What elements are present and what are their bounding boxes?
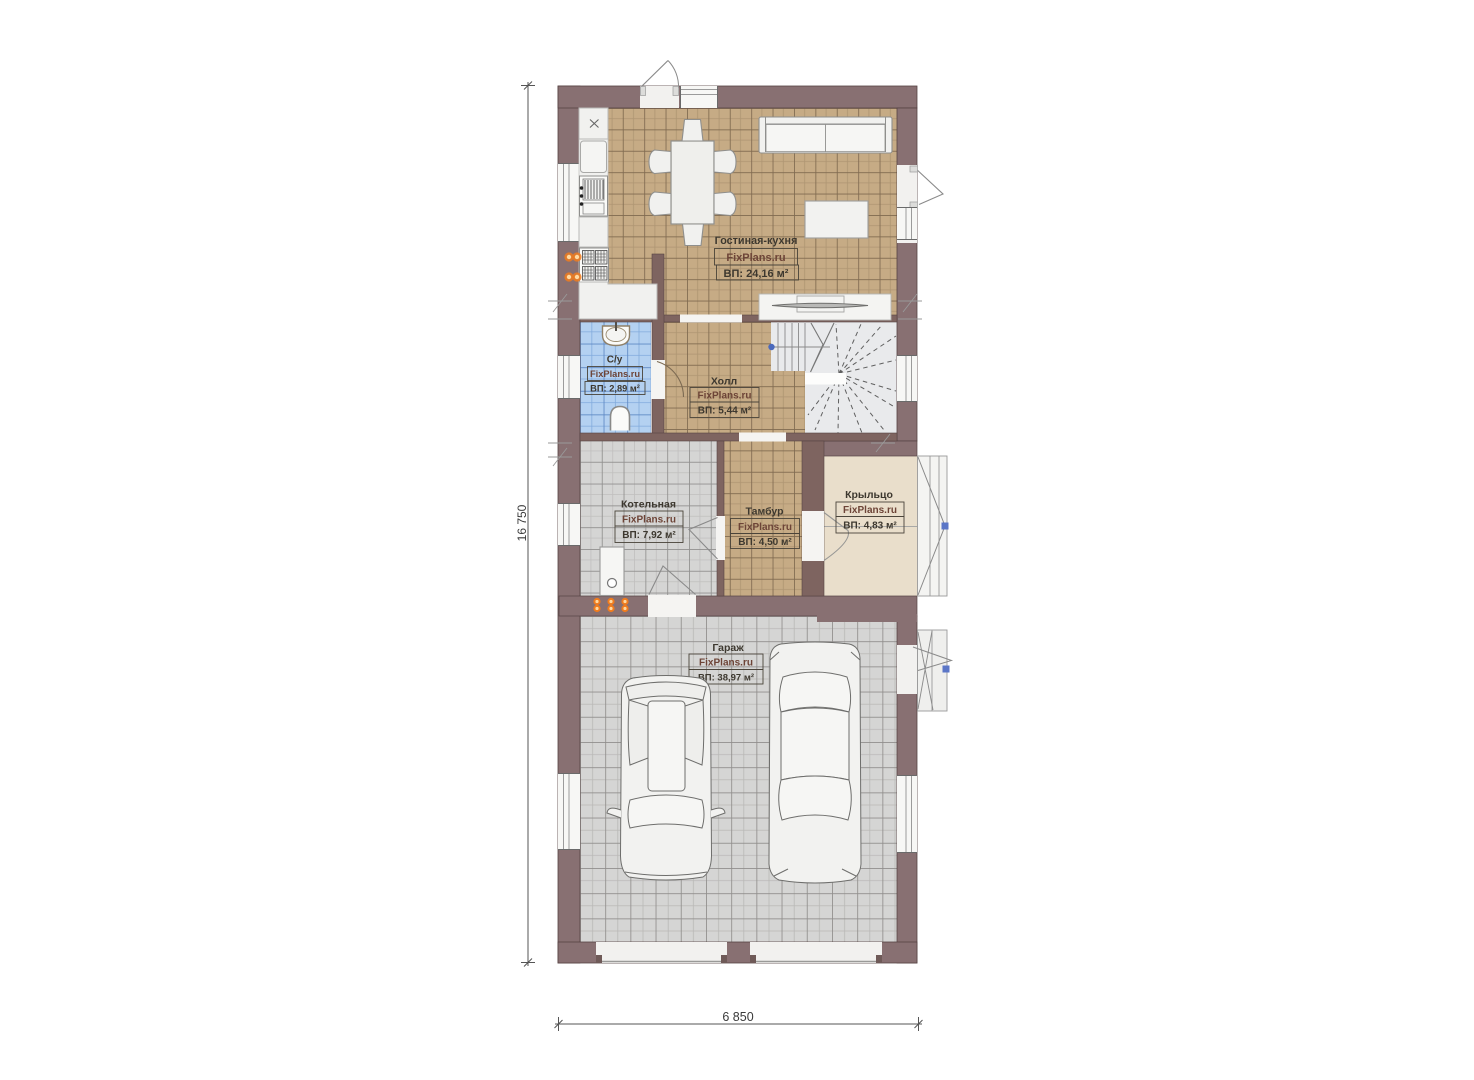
svg-text:ВП: 5,44 м²: ВП: 5,44 м² [698, 406, 752, 417]
svg-text:FixPlans.ru: FixPlans.ru [590, 369, 640, 379]
svg-text:Гостиная-кухня: Гостиная-кухня [715, 235, 798, 247]
svg-text:Крыльцо: Крыльцо [845, 489, 893, 501]
svg-text:ВП: 4,83 м²: ВП: 4,83 м² [843, 521, 897, 532]
svg-text:16 750: 16 750 [515, 504, 529, 541]
svg-text:Котельная: Котельная [621, 499, 676, 511]
svg-text:ВП: 4,50 м²: ВП: 4,50 м² [738, 537, 792, 548]
svg-text:6 850: 6 850 [722, 1010, 753, 1024]
svg-text:Холл: Холл [711, 376, 737, 388]
svg-text:Тамбур: Тамбур [745, 506, 783, 518]
svg-text:FixPlans.ru: FixPlans.ru [726, 252, 785, 264]
svg-text:FixPlans.ru: FixPlans.ru [698, 391, 752, 402]
svg-text:ВП: 24,16 м²: ВП: 24,16 м² [724, 268, 789, 280]
svg-text:ВП: 2,89 м²: ВП: 2,89 м² [590, 384, 640, 394]
svg-text:FixPlans.ru: FixPlans.ru [699, 658, 753, 669]
svg-text:FixPlans.ru: FixPlans.ru [622, 515, 676, 526]
svg-text:ВП: 7,92 м²: ВП: 7,92 м² [622, 530, 676, 541]
svg-text:С/у: С/у [607, 355, 623, 366]
svg-text:Гараж: Гараж [712, 642, 744, 654]
svg-text:FixPlans.ru: FixPlans.ru [738, 522, 792, 533]
svg-text:FixPlans.ru: FixPlans.ru [843, 505, 897, 516]
